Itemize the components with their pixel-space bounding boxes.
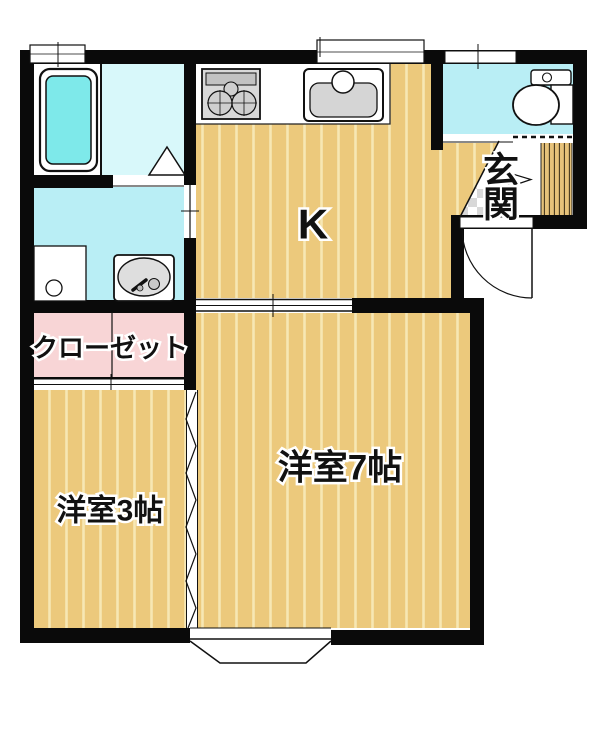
label-kitchen: K [298, 201, 328, 248]
wall-bath-bottom [20, 175, 113, 188]
gas-stove-icon [202, 69, 260, 119]
floor-plan-drawing: K 玄 関 クローゼット 洋室7帖 洋室3帖 [0, 0, 615, 746]
deck-boards [541, 142, 572, 218]
floor-plan-canvas: K 玄 関 クローゼット 洋室7帖 洋室3帖 [0, 0, 615, 746]
wall-closet-bottom-line [20, 377, 196, 380]
wall-toilet-right [573, 50, 587, 142]
wall-toilet-left [431, 50, 443, 150]
wall-washroom-bottom [20, 300, 196, 313]
kitchen-sink-icon [304, 69, 383, 121]
wall-kitchen-bottom [352, 298, 484, 313]
accordion-door [186, 390, 198, 628]
bathtub-icon [40, 69, 97, 171]
wall-bottom-right [331, 630, 484, 645]
wall-washroom-right [184, 238, 196, 302]
wall-bottom-left [20, 628, 190, 643]
label-western-room-7: 洋室7帖 [278, 448, 402, 488]
wall-right-room7 [470, 298, 484, 645]
label-entrance-char-2: 関 [483, 184, 519, 225]
washing-machine-pan-icon [34, 246, 86, 301]
label-western-room-3: 洋室3帖 [57, 494, 164, 528]
label-closet: クローゼット [32, 333, 188, 363]
kitchen-window [317, 40, 424, 63]
vanity-sink-icon [114, 255, 174, 301]
wall-bath-right [184, 50, 196, 185]
toilet-door [443, 134, 573, 143]
toilet-window [445, 51, 516, 63]
